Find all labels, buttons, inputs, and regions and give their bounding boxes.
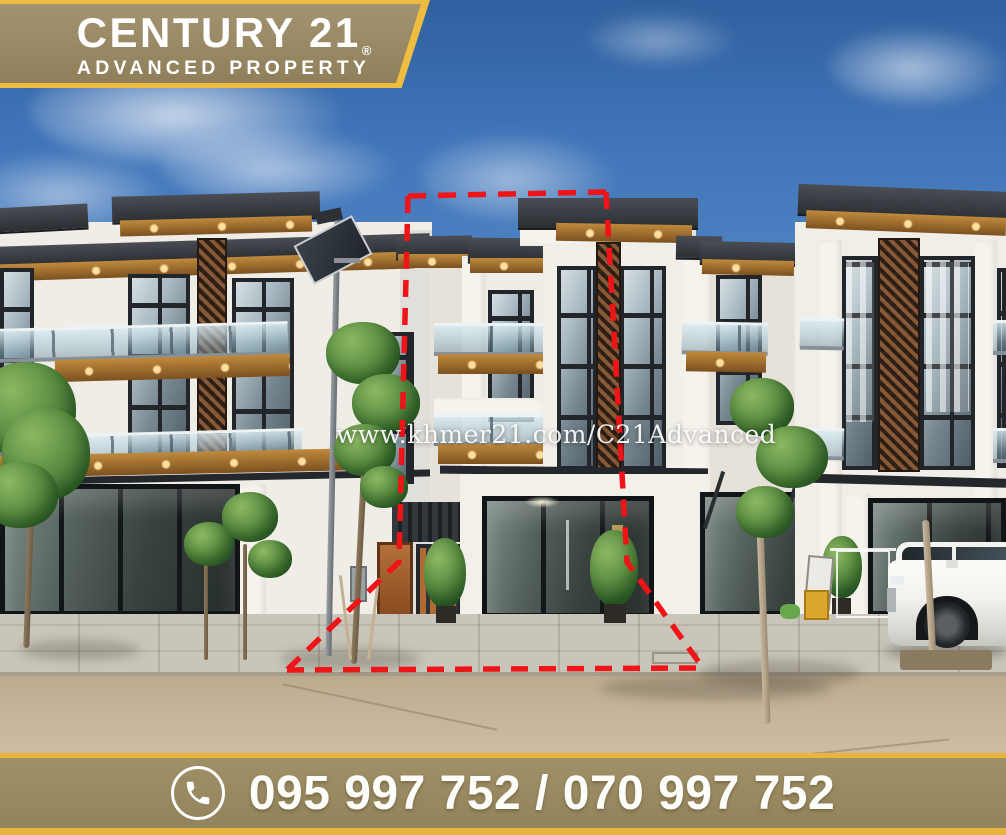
- metal-fence: [392, 502, 460, 542]
- headlight: [890, 576, 904, 585]
- plant-pot: [604, 604, 626, 623]
- contact-banner: 095 997 752 / 070 997 752: [0, 753, 1006, 835]
- balcony-soffit: [438, 354, 544, 374]
- brand-text: CENTURY 21: [77, 9, 361, 56]
- phone-handset-glyph: [183, 778, 213, 808]
- paved-apron: [0, 614, 1006, 676]
- green-object: [780, 604, 800, 619]
- wood-soffit: [556, 223, 692, 243]
- curtain: [926, 262, 969, 412]
- lattice-column: [878, 238, 920, 472]
- tree-trunk: [243, 544, 247, 660]
- grille: [887, 588, 896, 612]
- shadow-patch: [600, 676, 830, 700]
- wood-soffit: [470, 258, 546, 273]
- lamp-bracket: [334, 258, 360, 263]
- planting-pit: [900, 650, 992, 670]
- balcony-rail: [434, 323, 546, 356]
- orange-door: [377, 542, 413, 620]
- potted-plant: [590, 530, 638, 606]
- brand-subtitle: ADVANCED PROPERTY: [26, 57, 421, 80]
- ceiling-light: [524, 496, 560, 508]
- wood-soffit: [702, 259, 794, 276]
- phone-icon: [171, 766, 225, 820]
- tree-foliage: [360, 466, 408, 508]
- drying-rack: [836, 550, 890, 618]
- potted-plant: [424, 538, 466, 608]
- drain-grate: [652, 652, 698, 664]
- plant-pot: [436, 606, 456, 623]
- yellow-container: [804, 590, 829, 620]
- balcony-rail: [800, 318, 845, 351]
- listing-photo: www.khmer21.com/C21Advanced CENTURY 21® …: [0, 0, 1006, 835]
- wood-soffit: [398, 254, 470, 268]
- contact-banner-body: 095 997 752 / 070 997 752: [0, 758, 1006, 828]
- door-handle: [566, 520, 569, 590]
- side-mirror: [946, 560, 958, 568]
- balcony-rail: [993, 428, 1006, 463]
- phone-numbers: 095 997 752 / 070 997 752: [249, 766, 835, 821]
- logo-banner: CENTURY 21® ADVANCED PROPERTY: [0, 4, 421, 83]
- balcony-soffit: [686, 351, 766, 372]
- tree-foliage: [736, 486, 794, 538]
- tree-foliage: [222, 492, 278, 542]
- logo-banner-border: CENTURY 21® ADVANCED PROPERTY: [0, 0, 430, 88]
- tree-shadow: [20, 640, 140, 660]
- tree-trunk: [204, 556, 208, 660]
- cloud: [830, 25, 1006, 105]
- brand-name: CENTURY 21®: [26, 11, 421, 55]
- curtain: [846, 262, 874, 422]
- roof-cap: [0, 204, 89, 235]
- watermark-text: www.khmer21.com/C21Advanced: [336, 420, 776, 449]
- cloud: [590, 10, 740, 65]
- tree-foliage: [248, 540, 292, 578]
- balcony-rail: [993, 320, 1006, 355]
- drying-rack-bar: [830, 548, 896, 551]
- banner-border-bottom: [0, 828, 1006, 835]
- registered-mark: ®: [362, 43, 372, 58]
